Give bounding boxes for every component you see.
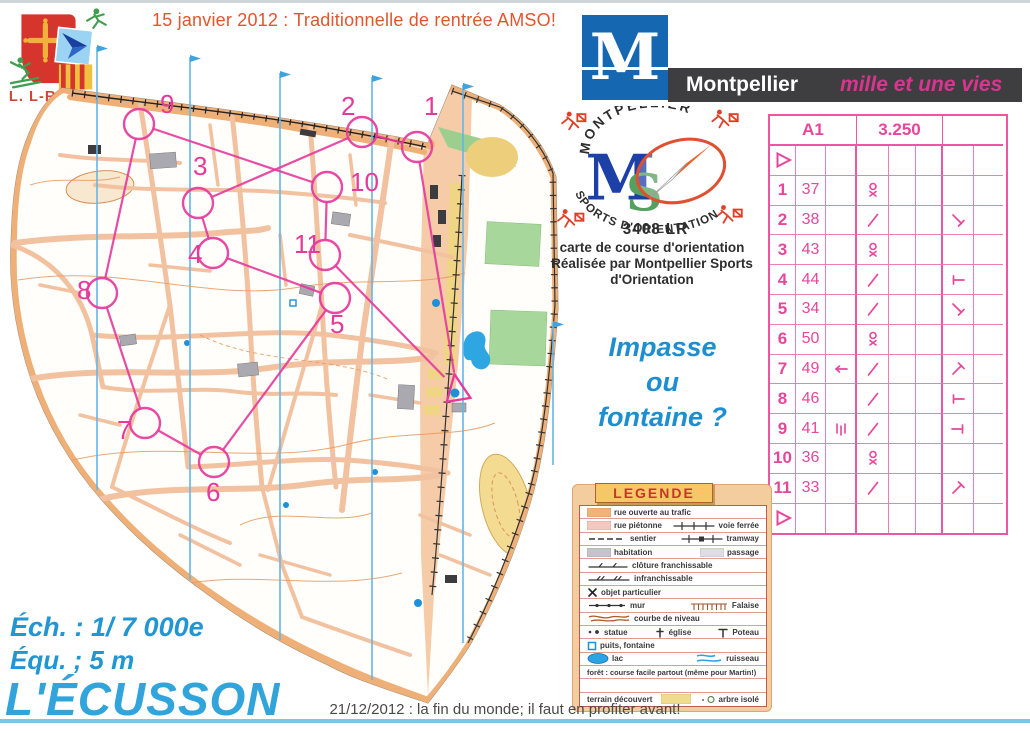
fence2-icon <box>587 574 631 583</box>
description-cell-g <box>943 355 974 385</box>
description-cell-h <box>974 504 1003 534</box>
description-cell-h <box>974 414 1003 444</box>
legend-row: objet particulier <box>580 586 766 599</box>
statue-icon <box>863 180 883 200</box>
description-cell-f <box>916 176 943 206</box>
description-cell-f <box>916 265 943 295</box>
description-cell-c <box>826 444 857 474</box>
description-cell-c <box>826 206 857 236</box>
control-number: 7 <box>117 415 131 445</box>
description-cell-e <box>889 295 916 325</box>
description-cell-f <box>916 295 943 325</box>
control-number-cell: 7 <box>770 355 796 385</box>
slash-icon <box>863 299 883 319</box>
description-cell-g <box>943 295 974 325</box>
description-cell-f <box>916 206 943 236</box>
legend-row: sentiertramway <box>580 533 766 546</box>
contour-icon <box>587 613 631 624</box>
control-number-cell: 1 <box>770 176 796 206</box>
t-right-icon <box>948 419 968 439</box>
description-cell-g <box>943 474 974 504</box>
legend-row: forêt : course facile partout (même pour… <box>580 666 766 679</box>
legend-label: ruisseau <box>726 654 759 663</box>
triangle-icon <box>773 150 793 170</box>
swatch-pink-icon <box>587 521 611 530</box>
description-cell-f <box>916 325 943 355</box>
scan-edge <box>0 0 1030 3</box>
map-credit: carte de course d'orientation Réalisée p… <box>541 240 763 288</box>
control-number-cell: 11 <box>770 474 796 504</box>
description-cell-c <box>826 474 857 504</box>
bar-se-icon <box>948 299 968 319</box>
legend-label: clôture franchissable <box>632 561 712 570</box>
question-line-3: fontaine ? <box>570 400 755 435</box>
slash-icon <box>863 419 883 439</box>
legend-item: forêt : course facile partout (même pour… <box>587 668 756 677</box>
control-code-cell: 36 <box>796 444 826 474</box>
description-cell-d <box>857 355 889 385</box>
legend-row: courbe de niveau <box>580 613 766 626</box>
control-number-cell: 6 <box>770 325 796 355</box>
control-code-cell <box>796 146 826 176</box>
kiosk <box>426 387 442 397</box>
stream-icon <box>695 653 723 664</box>
description-cell-c <box>826 325 857 355</box>
control-number-cell: 4 <box>770 265 796 295</box>
description-cell-g <box>943 325 974 355</box>
bar-ne-icon <box>948 478 968 498</box>
slash-icon <box>863 389 883 409</box>
legend-label: courbe de niveau <box>634 614 700 623</box>
description-cell-h <box>974 295 1003 325</box>
description-cell-g <box>943 504 974 534</box>
description-cell-c <box>826 414 857 444</box>
question-line-1: Impasse <box>570 330 755 365</box>
description-cell-c <box>826 146 857 176</box>
statuedots-icon <box>587 627 601 637</box>
description-cell-c <box>826 355 857 385</box>
control-number: 11 <box>294 229 321 259</box>
description-cell-c <box>826 235 857 265</box>
control-code-cell: 44 <box>796 265 826 295</box>
legend-item: Poteau <box>717 627 759 638</box>
bar-ne-icon <box>948 359 968 379</box>
legend-item: puits, fontaine <box>587 641 655 651</box>
t-left-icon <box>948 389 968 409</box>
description-cell-e <box>889 265 916 295</box>
fence1-icon <box>587 561 629 570</box>
description-cell-g <box>943 146 974 176</box>
legend-item: tramway <box>680 534 759 544</box>
description-cell-c <box>826 295 857 325</box>
control-code-cell: 46 <box>796 384 826 414</box>
control-number: 10 <box>350 167 379 197</box>
mso-logo-icon: MONTPELLIER M S SPORTS D'ORIENTATION 340… <box>548 106 763 240</box>
legend-item: sentier <box>587 534 656 544</box>
description-cell-e <box>889 235 916 265</box>
control-number: 3 <box>193 151 207 181</box>
legend-item: infranchissable <box>587 574 693 583</box>
description-cell-d <box>857 325 889 355</box>
tramway-icon <box>680 534 724 544</box>
swatch-gray-icon <box>587 548 611 557</box>
description-cell-d <box>857 235 889 265</box>
description-cell-e <box>889 444 916 474</box>
event-title: 15 janvier 2012 : Traditionnelle de rent… <box>152 10 572 31</box>
finish-symbol-cell <box>770 504 796 534</box>
control-number-cell: 5 <box>770 295 796 325</box>
cliff-icon <box>689 601 729 611</box>
legend-item: mur <box>587 601 645 610</box>
description-cell-h <box>974 384 1003 414</box>
description-cell-e <box>889 206 916 236</box>
legend-row: statueéglisePoteau <box>580 626 766 639</box>
description-cell-d <box>857 384 889 414</box>
legend-row: infranchissable <box>580 573 766 586</box>
control-number-cell: 9 <box>770 414 796 444</box>
description-cell-f <box>916 146 943 176</box>
mso-club-logo: MONTPELLIER M S SPORTS D'ORIENTATION 340… <box>548 106 763 245</box>
control-number: 5 <box>330 309 344 339</box>
description-cell-h <box>974 265 1003 295</box>
description-cell-h <box>974 176 1003 206</box>
legend-label: rue piétonne <box>614 521 662 530</box>
description-cell-h <box>974 355 1003 385</box>
description-cell-f <box>916 474 943 504</box>
park <box>485 222 541 267</box>
slash-icon <box>863 478 883 498</box>
statue-icon <box>863 329 883 349</box>
city-slogan: mille et une vies <box>840 73 1002 97</box>
description-cell-e <box>889 384 916 414</box>
legend-label: mur <box>630 601 645 610</box>
legend-item: voie ferrée <box>672 521 759 531</box>
railway-icon <box>672 521 716 531</box>
legend-item: Falaise <box>689 601 759 611</box>
credit-line-2: Réalisée par Montpellier Sports <box>541 256 763 272</box>
legend-item: lac <box>587 653 623 664</box>
legend-label: rue ouverte au trafic <box>614 508 691 517</box>
legend-item: passage <box>700 548 759 557</box>
kiosk <box>424 405 440 415</box>
legend-row: lacruisseau <box>580 653 766 666</box>
legend-item: habitation <box>587 548 652 557</box>
control-number: 2 <box>341 91 355 121</box>
description-cell-d <box>857 474 889 504</box>
description-cell-d <box>857 206 889 236</box>
description-cell-f <box>916 355 943 385</box>
description-cell-d <box>857 265 889 295</box>
legend-label: passage <box>727 548 759 557</box>
description-cell-g <box>943 384 974 414</box>
legend-label: habitation <box>614 548 652 557</box>
pole-icon <box>717 627 729 638</box>
control-number: 1 <box>424 91 438 121</box>
control-code-cell: 38 <box>796 206 826 236</box>
crossx-icon <box>587 587 598 598</box>
description-cell-c <box>826 265 857 295</box>
montpellier-logo: M <box>582 15 668 100</box>
description-cell-c <box>826 176 857 206</box>
legend-label: Falaise <box>732 601 759 610</box>
legend-label: tramway <box>727 534 759 543</box>
statue-icon <box>863 448 883 468</box>
credit-line-1: carte de course d'orientation <box>541 240 763 256</box>
swatch-orange-icon <box>587 508 611 517</box>
mso-code: 3408 LR <box>623 221 688 238</box>
legend-label: infranchissable <box>634 574 693 583</box>
control-number: 9 <box>160 89 174 119</box>
control-code-cell: 49 <box>796 355 826 385</box>
description-cell-h <box>974 206 1003 236</box>
legend-row: clôture franchissable <box>580 559 766 572</box>
garden-area <box>466 137 518 177</box>
well-icon <box>587 641 597 651</box>
description-cell-e <box>889 325 916 355</box>
start-symbol-cell <box>770 146 796 176</box>
description-cell-f <box>916 444 943 474</box>
legend-item: rue ouverte au trafic <box>587 508 691 517</box>
control-number-cell: 2 <box>770 206 796 236</box>
t-left-icon <box>948 270 968 290</box>
legend-item: statue <box>587 627 628 637</box>
legend-label: forêt : course facile partout (même pour… <box>587 668 756 677</box>
control-number-cell: 10 <box>770 444 796 474</box>
description-cell-h <box>974 474 1003 504</box>
bar-se-icon <box>948 210 968 230</box>
legend-item: rue piétonne <box>587 521 662 530</box>
legend-label: objet particulier <box>601 588 661 597</box>
legend-item: courbe de niveau <box>587 613 700 624</box>
description-cell-d <box>857 176 889 206</box>
description-cell-h <box>974 235 1003 265</box>
dashline-icon <box>587 534 627 544</box>
gymnast-icon <box>87 8 106 28</box>
park <box>489 310 547 366</box>
page-bottom-rule <box>0 719 1030 723</box>
control-number-cell: 3 <box>770 235 796 265</box>
legend-row: rue piétonnevoie ferrée <box>580 519 766 532</box>
legend-label: lac <box>612 654 623 663</box>
legend-item: objet particulier <box>587 587 661 598</box>
legend-item: église <box>654 627 692 638</box>
description-cell-d <box>857 295 889 325</box>
description-cell-e <box>889 146 916 176</box>
control-code-cell: 34 <box>796 295 826 325</box>
description-cell-e <box>889 176 916 206</box>
legend-title: LEGENDE <box>595 483 713 503</box>
legend-label: puits, fontaine <box>600 641 655 650</box>
description-cell-f <box>916 384 943 414</box>
legend-label: sentier <box>630 534 656 543</box>
description-cell-e <box>889 504 916 534</box>
control-code-cell: 43 <box>796 235 826 265</box>
description-cell-g <box>943 414 974 444</box>
question-text: Impasse ou fontaine ? <box>570 330 755 435</box>
description-cell-f <box>916 414 943 444</box>
montpellier-banner-bar: Montpellier mille et une vies <box>668 68 1022 102</box>
question-line-2: ou <box>570 365 755 400</box>
control-code-cell: 37 <box>796 176 826 206</box>
description-cell-c <box>826 504 857 534</box>
description-cell-h <box>974 146 1003 176</box>
legend-row: murFalaise <box>580 599 766 612</box>
footer-note: 21/12/2012 : la fin du monde; il faut en… <box>265 701 745 718</box>
arrow-left-icon <box>831 359 851 379</box>
city-name: Montpellier <box>686 73 798 97</box>
slash-icon <box>863 359 883 379</box>
control-number: 8 <box>77 275 91 305</box>
description-cell-g <box>943 265 974 295</box>
legend-row: puits, fontaine <box>580 639 766 652</box>
map-name-text: L'ÉCUSSON <box>5 672 281 726</box>
wall-icon <box>587 601 627 610</box>
description-cell-e <box>889 355 916 385</box>
description-cell-g <box>943 176 974 206</box>
control-code-cell: 41 <box>796 414 826 444</box>
montpellier-m-letter: M <box>582 15 668 100</box>
course-climb <box>943 116 1003 146</box>
legend-row: habitationpassage <box>580 546 766 559</box>
description-cell-d <box>857 414 889 444</box>
lake-icon <box>587 653 609 664</box>
description-cell-g <box>943 235 974 265</box>
control-code-cell <box>796 504 826 534</box>
slash-icon <box>863 210 883 230</box>
control-code-cell: 33 <box>796 474 826 504</box>
control-number: 6 <box>206 477 220 507</box>
course-name: A1 <box>770 116 857 146</box>
description-cell-g <box>943 206 974 236</box>
description-cell-f <box>916 504 943 534</box>
description-cell-d <box>857 444 889 474</box>
description-cell-h <box>974 325 1003 355</box>
description-cell-g <box>943 444 974 474</box>
control-number: 4 <box>188 239 202 269</box>
church-icon <box>654 627 666 638</box>
map-scale-text: Éch. : 1/ 7 000e <box>10 612 204 643</box>
scanned-orienteering-map-page: L. L-R.C.O. 15 janvier 2012 : Traditionn… <box>0 0 1030 733</box>
swatch-lightgray-icon <box>700 548 724 557</box>
triangle-icon <box>773 508 793 528</box>
legend-label: statue <box>604 628 628 637</box>
legend-item: clôture franchissable <box>587 561 712 570</box>
legend-item: ruisseau <box>695 653 759 664</box>
course-length: 3.250 <box>857 116 943 146</box>
legend-row <box>580 679 766 692</box>
logo-rule <box>582 67 668 70</box>
legend-box: rue ouverte au traficrue piétonnevoie fe… <box>579 505 767 707</box>
control-number-cell: 8 <box>770 384 796 414</box>
description-cell-e <box>889 414 916 444</box>
between-icon <box>831 419 851 439</box>
course-leg <box>325 202 326 240</box>
slash-icon <box>863 270 883 290</box>
legend-card: LEGENDE rue ouverte au traficrue piétonn… <box>572 484 772 712</box>
legend-label: Poteau <box>732 628 759 637</box>
control-code-cell: 50 <box>796 325 826 355</box>
description-cell-c <box>826 384 857 414</box>
control-description-card: A1 3.250 1372383434445346507498469411036… <box>768 114 1008 535</box>
legend-label: voie ferrée <box>719 521 759 530</box>
legend-row: rue ouverte au trafic <box>580 506 766 519</box>
legend-label: église <box>669 628 692 637</box>
description-cell-d <box>857 146 889 176</box>
credit-line-3: d'Orientation <box>541 272 763 288</box>
description-cell-h <box>974 444 1003 474</box>
statue-icon <box>863 240 883 260</box>
description-cell-d <box>857 504 889 534</box>
description-cell-f <box>916 235 943 265</box>
description-cell-e <box>889 474 916 504</box>
